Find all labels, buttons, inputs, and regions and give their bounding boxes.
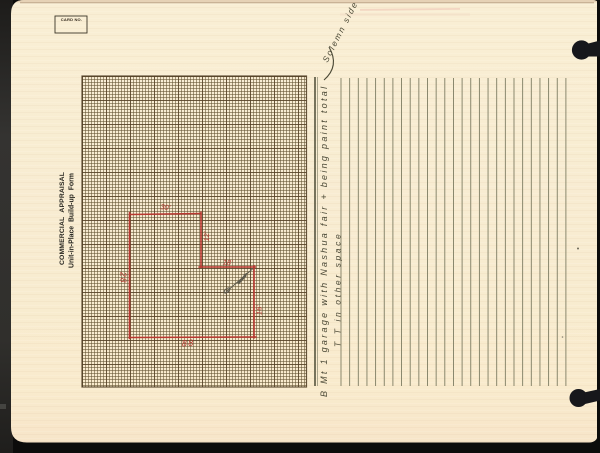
svg-text:B Mt 1 garage with Nashua fair: B Mt 1 garage with Nashua fair + being p… bbox=[319, 85, 329, 397]
svg-text:12’: 12’ bbox=[202, 231, 211, 241]
svg-text:28: 28 bbox=[119, 271, 129, 283]
svg-text:T T in other space: T T in other space bbox=[333, 232, 343, 347]
svg-text:88: 88 bbox=[181, 338, 194, 349]
svg-text:16’: 16’ bbox=[255, 305, 264, 315]
svg-text:Unit-in-Place Build-up Form: Unit-in-Place Build-up Form bbox=[69, 173, 76, 268]
svg-text:CARD NO.: CARD NO. bbox=[61, 17, 82, 22]
svg-text:30’: 30’ bbox=[160, 202, 171, 212]
svg-text:18’: 18’ bbox=[222, 258, 233, 268]
svg-text:COMMERCIAL APPRAISAL: COMMERCIAL APPRAISAL bbox=[59, 172, 66, 265]
